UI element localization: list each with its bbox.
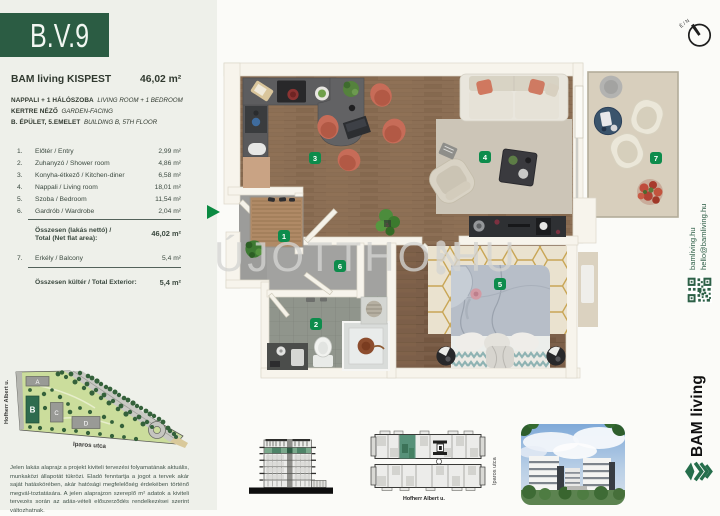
svg-text:HU: HU [451, 233, 518, 280]
svg-text:7: 7 [654, 154, 658, 163]
svg-text:2: 2 [314, 320, 318, 329]
svg-text:C: C [54, 411, 59, 417]
svg-text:ÚJOTTHON: ÚJOTTHON [214, 233, 467, 280]
svg-text:3: 3 [313, 154, 317, 163]
svg-text:D: D [84, 421, 89, 428]
svg-text:A: A [35, 380, 39, 386]
svg-text:É / N: É / N [678, 17, 691, 30]
svg-text:B: B [30, 406, 36, 415]
